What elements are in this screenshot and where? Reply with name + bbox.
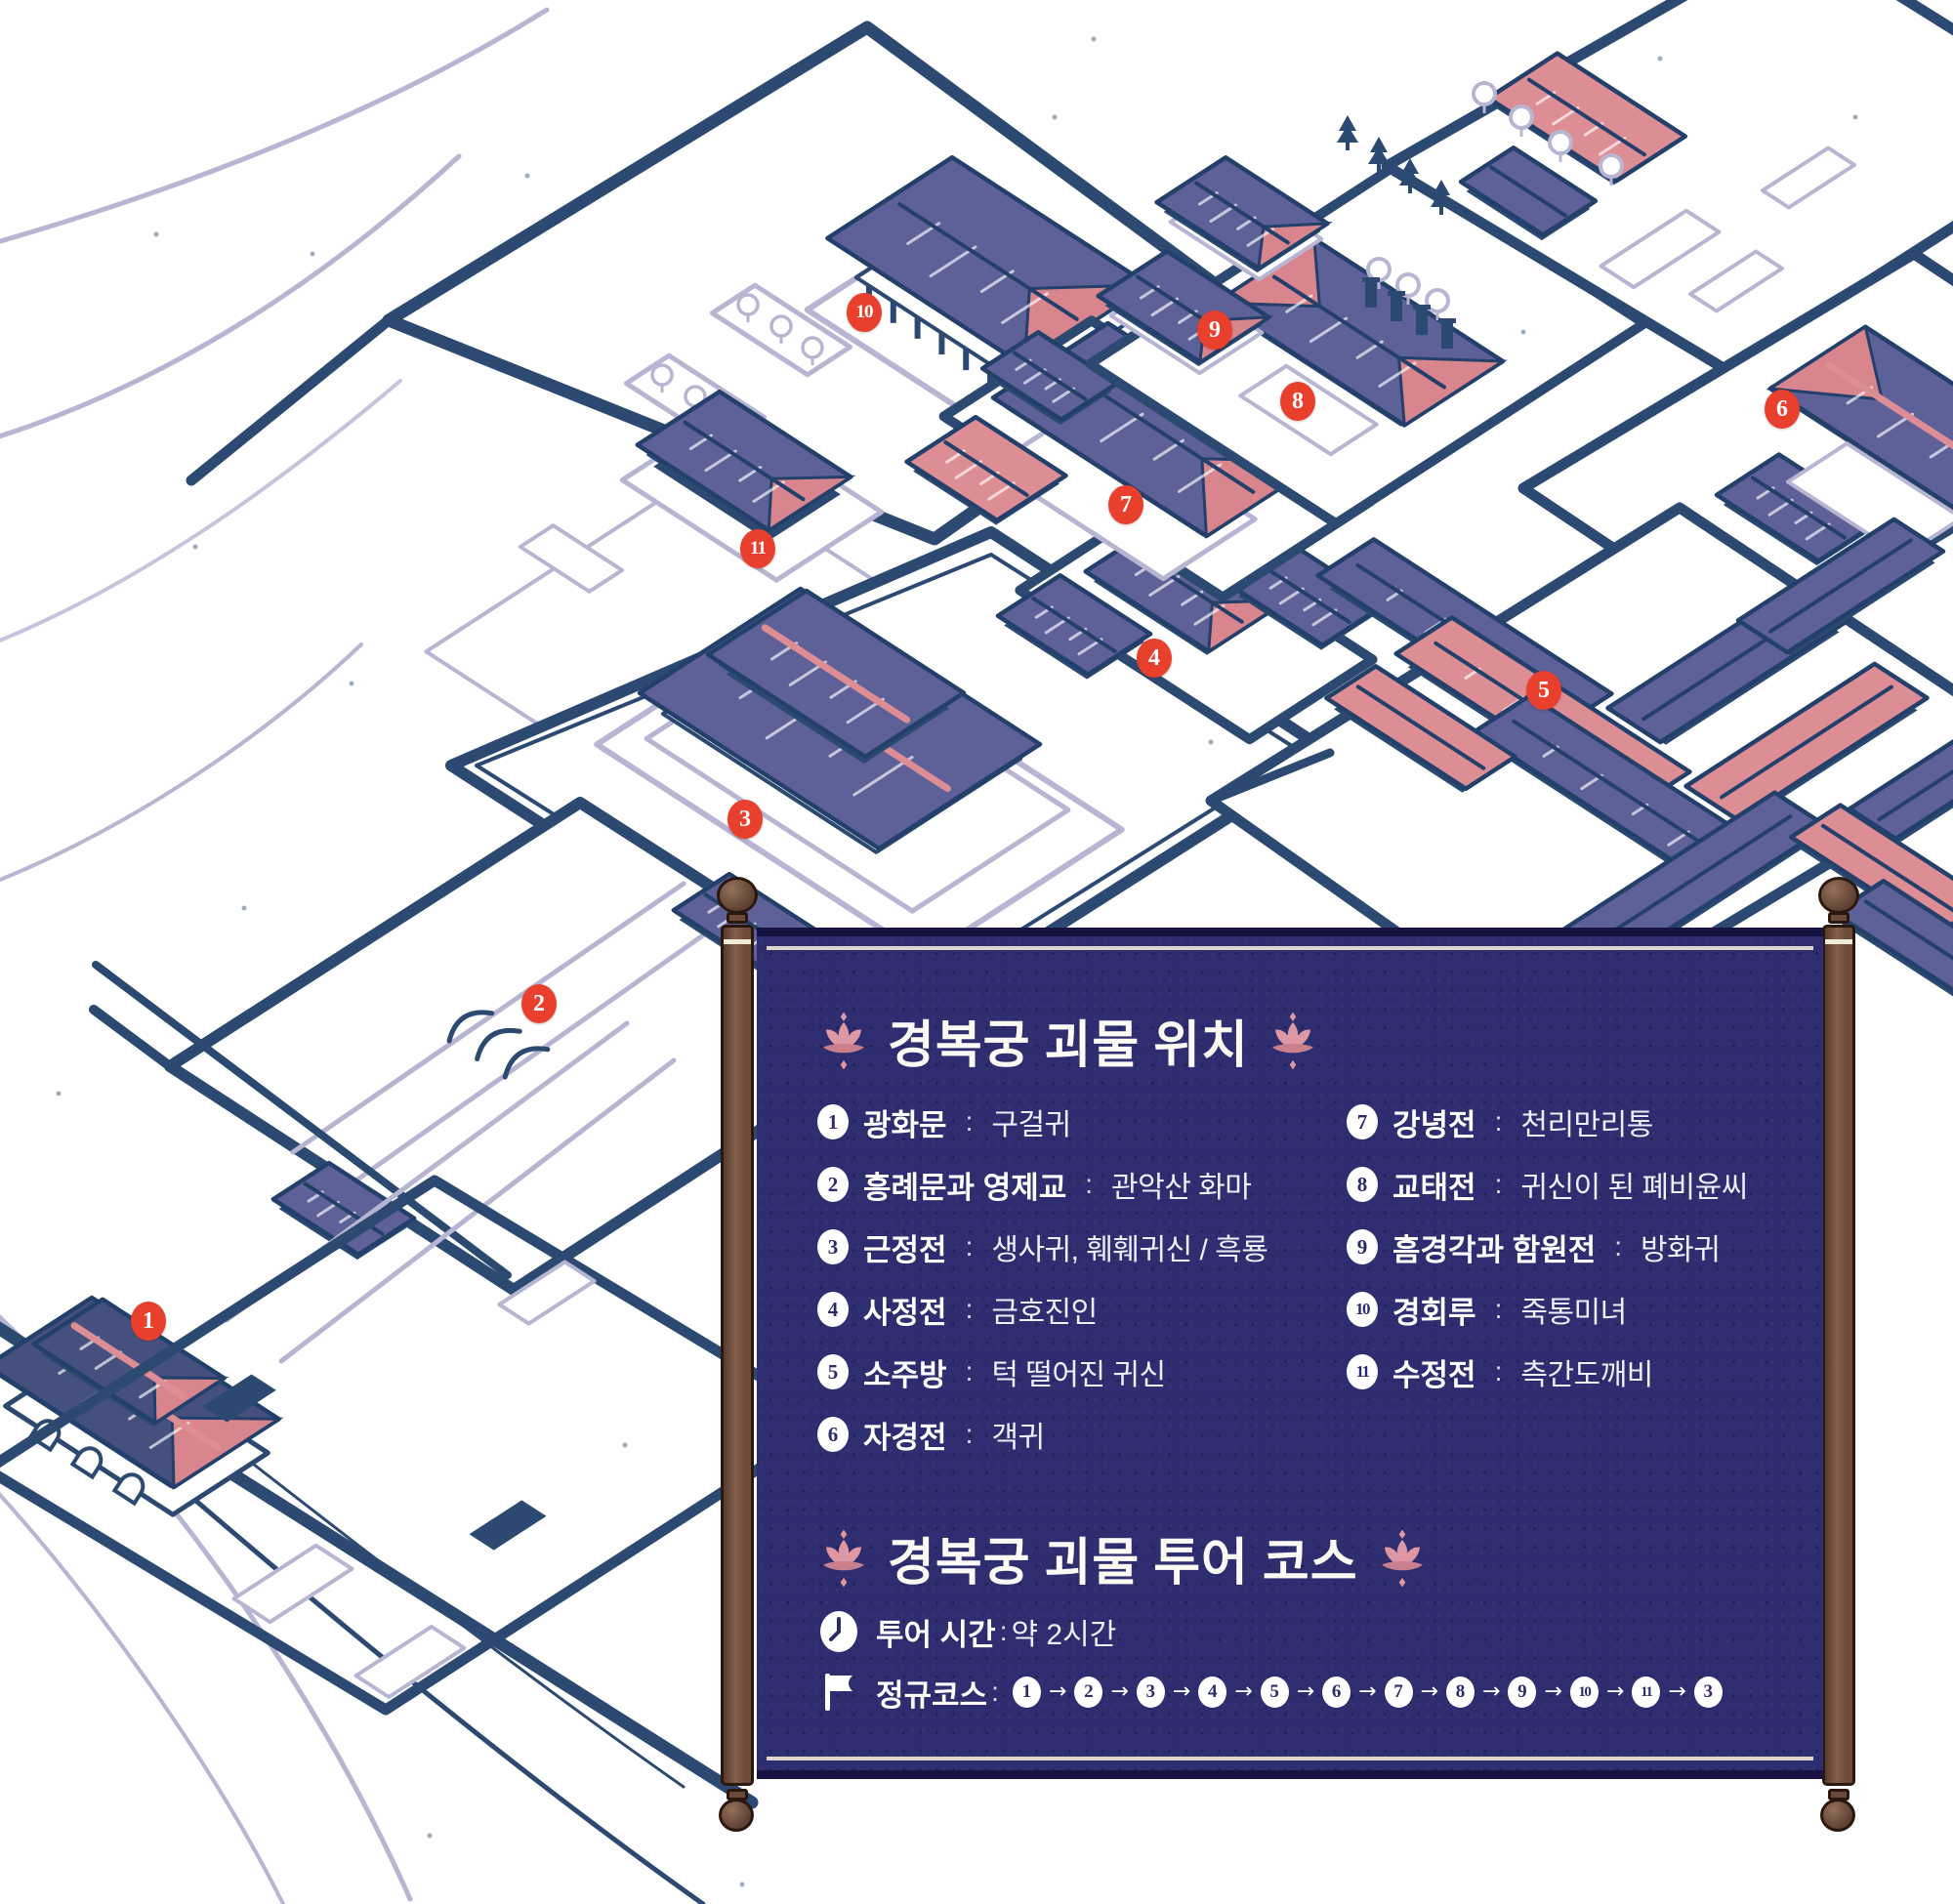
legend-item-name: 흥례문과 영제교	[863, 1163, 1066, 1207]
course-stop-9: 9	[1508, 1676, 1536, 1708]
legend-item-number: 10	[1347, 1292, 1378, 1327]
legend-item-2: 2흥례문과 영제교:관악산 화마	[817, 1153, 1267, 1216]
legend-item-desc: 방화귀	[1641, 1225, 1720, 1268]
lotus-icon	[817, 1005, 870, 1075]
legend-panel: 경복궁 괴물 위치 1광화문:구걸귀2흥례문과 영제교:관악산 화마3근정전:생…	[757, 928, 1823, 1779]
legend-item-9: 9흠경각과 함원전:방화귀	[1347, 1216, 1748, 1278]
separator: :	[966, 1106, 974, 1138]
course-stop-10: 10	[1570, 1676, 1599, 1708]
flag-icon	[817, 1671, 860, 1714]
legend-item-number: 7	[1347, 1104, 1378, 1139]
panel-trim-line	[767, 946, 1813, 950]
legend-item-3: 3근정전:생사귀, 훼훼귀신 / 흑룡	[817, 1216, 1267, 1278]
legend-item-name: 소주방	[863, 1350, 947, 1394]
map-marker-11: 11	[740, 529, 775, 568]
separator: :	[966, 1356, 974, 1387]
course-stop-11: 11	[1632, 1676, 1660, 1708]
legend-item-name: 교태전	[1392, 1163, 1476, 1207]
map-marker-9: 9	[1197, 310, 1232, 350]
palace-tour-poster: 1234567891011 경복궁 괴물 위치 1광화문:구걸귀2흥례문과 영제…	[0, 0, 1953, 1904]
legend-item-10: 10경회루:죽통미녀	[1347, 1278, 1748, 1341]
legend-item-number: 9	[1347, 1229, 1378, 1264]
course-stop-2: 2	[1074, 1676, 1102, 1708]
separator: :	[1495, 1356, 1503, 1387]
separator: :	[966, 1294, 974, 1325]
course-stop-1: 1	[1013, 1676, 1041, 1708]
course-stop-4: 4	[1198, 1676, 1226, 1708]
legend-item-desc: 턱 떨어진 귀신	[991, 1350, 1165, 1393]
lotus-icon	[817, 1522, 870, 1593]
legend-item-desc: 죽통미녀	[1520, 1288, 1626, 1331]
course-arrow-icon: →	[1049, 1681, 1066, 1703]
tour-section-title: 경복궁 괴물 투어 코스	[817, 1520, 1429, 1594]
tour-time-label: 투어 시간	[876, 1610, 996, 1654]
legend-item-11: 11수정전:측간도깨비	[1347, 1341, 1748, 1403]
legend-item-4: 4사정전:금호진인	[817, 1278, 1267, 1341]
map-marker-2: 2	[521, 984, 557, 1023]
course-arrow-icon: →	[1297, 1681, 1314, 1703]
scroll-knob-icon	[717, 877, 758, 914]
scroll-pole-left	[721, 925, 754, 1786]
locations-title-text: 경복궁 괴물 위치	[888, 1004, 1249, 1077]
course-arrow-icon: →	[1234, 1681, 1252, 1703]
separator: :	[1085, 1169, 1093, 1200]
course-arrow-icon: →	[1668, 1681, 1685, 1703]
course-stop-8: 8	[1446, 1676, 1475, 1708]
legend-column-left: 1광화문:구걸귀2흥례문과 영제교:관악산 화마3근정전:생사귀, 훼훼귀신 /…	[817, 1091, 1267, 1466]
course-stop-12: 3	[1694, 1676, 1723, 1708]
legend-item-1: 1광화문:구걸귀	[817, 1091, 1267, 1153]
legend-item-5: 5소주방:턱 떨어진 귀신	[817, 1341, 1267, 1403]
course-stop-5: 5	[1261, 1676, 1289, 1708]
tour-title-text: 경복궁 괴물 투어 코스	[888, 1521, 1358, 1594]
tour-time-value: 약 2시간	[1011, 1610, 1116, 1653]
legend-item-name: 수정전	[1392, 1350, 1476, 1394]
separator: :	[991, 1676, 999, 1708]
legend-item-number: 8	[1347, 1167, 1378, 1202]
legend-item-name: 경회루	[1392, 1288, 1476, 1332]
course-arrow-icon: →	[1173, 1681, 1190, 1703]
legend-item-desc: 천리만리통	[1520, 1100, 1653, 1143]
separator: :	[1000, 1616, 1008, 1647]
course-arrow-icon: →	[1544, 1681, 1561, 1703]
legend-item-8: 8교태전:귀신이 된 폐비윤씨	[1347, 1153, 1748, 1216]
tour-time-row: 투어 시간 : 약 2시간	[817, 1608, 1116, 1655]
course-arrow-icon: →	[1110, 1681, 1128, 1703]
legend-item-name: 자경전	[863, 1413, 947, 1457]
scroll-knob-icon	[1818, 877, 1859, 914]
course-arrow-icon: →	[1606, 1681, 1624, 1703]
tour-course-row: 정규코스 : 1→2→3→4→5→6→7→8→9→10→11→3	[817, 1665, 1723, 1719]
scroll-knob-icon	[1820, 1799, 1855, 1832]
legend-item-number: 3	[817, 1229, 849, 1264]
legend-item-name: 강녕전	[1392, 1100, 1476, 1144]
map-marker-3: 3	[727, 800, 763, 839]
locations-section-title: 경복궁 괴물 위치	[817, 1003, 1319, 1077]
map-marker-10: 10	[847, 293, 882, 332]
legend-item-desc: 객귀	[991, 1413, 1044, 1456]
lotus-icon	[1376, 1522, 1429, 1593]
course-arrow-icon: →	[1358, 1681, 1376, 1703]
scroll-knob-icon	[719, 1799, 754, 1832]
legend-item-desc: 생사귀, 훼훼귀신 / 흑룡	[991, 1225, 1267, 1268]
separator: :	[1495, 1294, 1503, 1325]
map-marker-5: 5	[1526, 671, 1561, 710]
course-label: 정규코스	[876, 1671, 987, 1715]
legend-item-desc: 금호진인	[991, 1288, 1097, 1331]
legend-item-number: 2	[817, 1167, 849, 1202]
legend-item-name: 광화문	[863, 1100, 947, 1144]
course-arrow-icon: →	[1421, 1681, 1438, 1703]
course-stop-3: 3	[1137, 1676, 1165, 1708]
legend-item-name: 사정전	[863, 1288, 947, 1332]
clock-icon	[817, 1610, 860, 1653]
separator: :	[1495, 1106, 1503, 1138]
legend-item-desc: 구걸귀	[991, 1100, 1070, 1143]
legend-scroll: 경복궁 괴물 위치 1광화문:구걸귀2흥례문과 영제교:관악산 화마3근정전:생…	[718, 877, 1862, 1843]
legend-item-7: 7강녕전:천리만리통	[1347, 1091, 1748, 1153]
panel-trim-line	[767, 1757, 1813, 1760]
legend-column-right: 7강녕전:천리만리통8교태전:귀신이 된 폐비윤씨9흠경각과 함원전:방화귀10…	[1347, 1091, 1748, 1403]
legend-item-name: 근정전	[863, 1225, 947, 1269]
separator: :	[966, 1231, 974, 1262]
legend-item-number: 6	[817, 1417, 849, 1452]
legend-item-number: 11	[1347, 1354, 1378, 1389]
course-stop-7: 7	[1385, 1676, 1413, 1708]
legend-item-desc: 귀신이 된 폐비윤씨	[1520, 1163, 1747, 1206]
legend-item-name: 흠경각과 함원전	[1392, 1225, 1596, 1269]
legend-item-number: 1	[817, 1104, 849, 1139]
separator: :	[1614, 1231, 1622, 1262]
course-stop-6: 6	[1322, 1676, 1350, 1708]
separator: :	[1495, 1169, 1503, 1200]
legend-item-6: 6자경전:객귀	[817, 1403, 1267, 1466]
course-sequence: 1→2→3→4→5→6→7→8→9→10→11→3	[1013, 1676, 1723, 1708]
map-marker-7: 7	[1108, 485, 1143, 524]
map-marker-4: 4	[1137, 639, 1172, 678]
separator: :	[966, 1419, 974, 1450]
scroll-pole-right	[1822, 925, 1855, 1786]
legend-item-number: 4	[817, 1292, 849, 1327]
map-marker-6: 6	[1765, 390, 1800, 429]
legend-item-desc: 관악산 화마	[1111, 1163, 1251, 1206]
lotus-icon	[1267, 1005, 1319, 1075]
map-marker-1: 1	[131, 1302, 166, 1341]
map-marker-8: 8	[1280, 382, 1315, 421]
legend-item-number: 5	[817, 1354, 849, 1389]
course-arrow-icon: →	[1482, 1681, 1500, 1703]
legend-item-desc: 측간도깨비	[1520, 1350, 1653, 1393]
